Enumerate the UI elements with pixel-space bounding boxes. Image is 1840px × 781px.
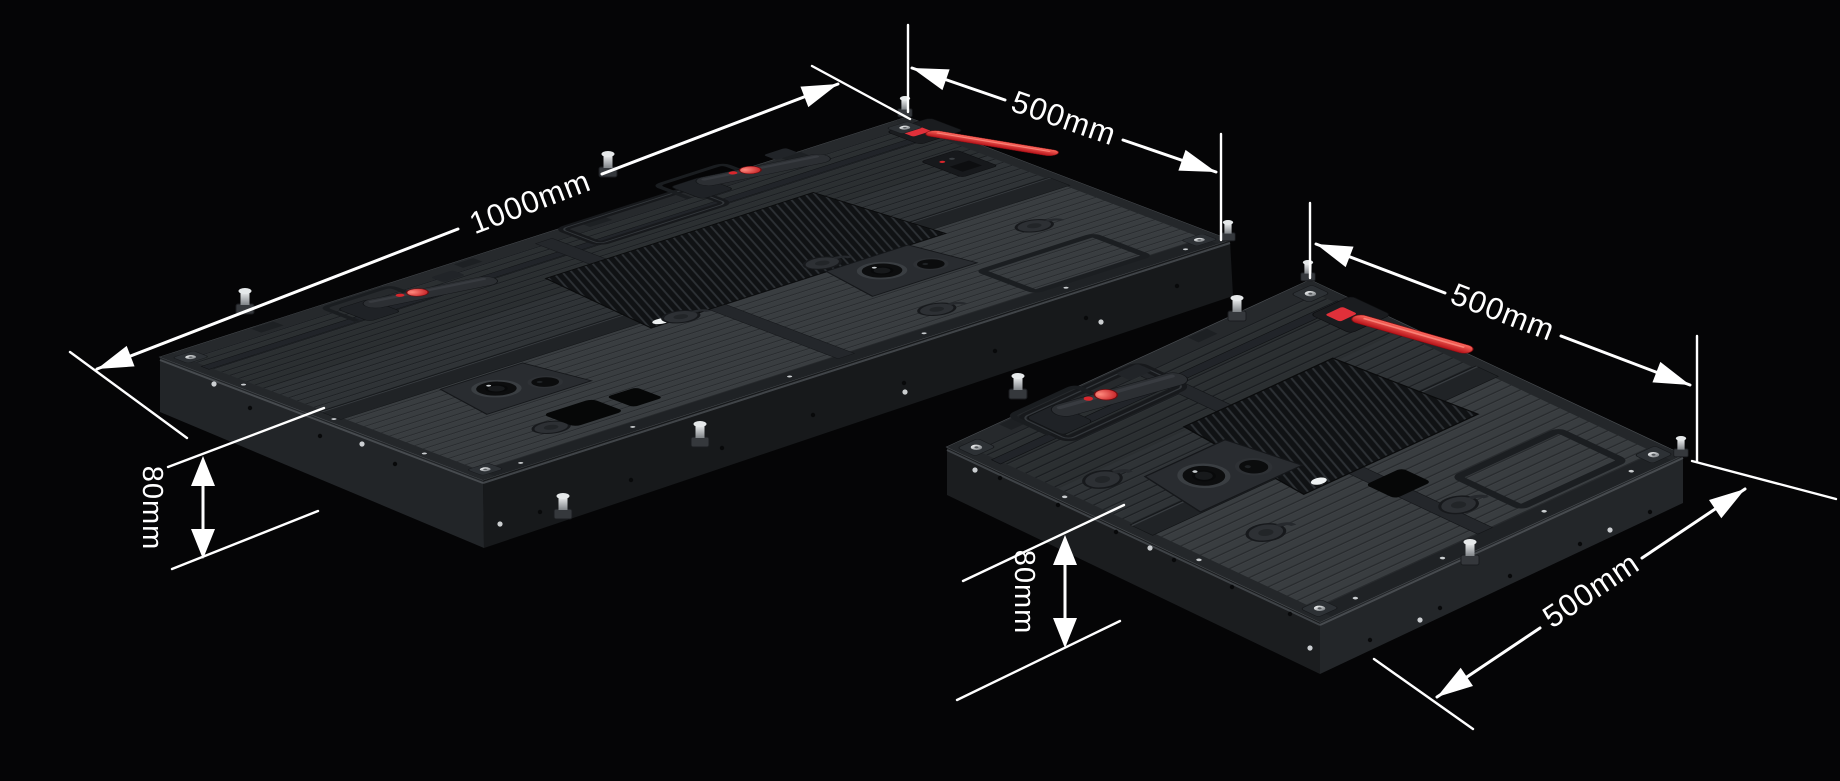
diagram-canvas: 1000mm 500mm 80mm 500mm 500mm (0, 0, 1840, 781)
product-dimension-diagram: 1000mm 500mm 80mm 500mm 500mm (0, 0, 1840, 781)
dim-label-right-height: 80mm (1008, 550, 1040, 635)
dim-label-left-height: 80mm (136, 466, 168, 551)
